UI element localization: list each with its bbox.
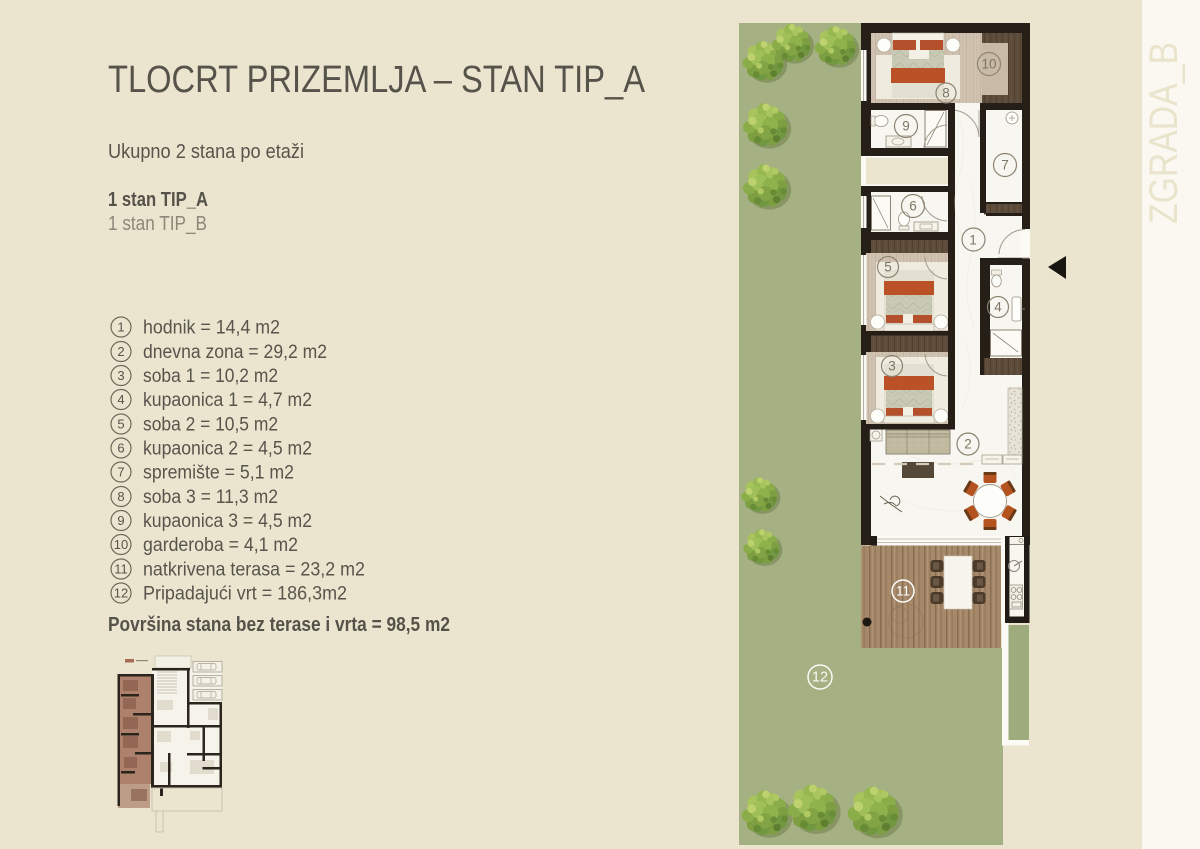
svg-text:1: 1	[969, 233, 977, 248]
svg-text:kupaonica 3 = 4,5 m2: kupaonica 3 = 4,5 m2	[143, 511, 312, 532]
svg-text:8: 8	[942, 86, 950, 101]
svg-text:8: 8	[117, 489, 124, 504]
svg-text:11: 11	[114, 562, 128, 577]
svg-text:kupaonica 1 = 4,7 m2: kupaonica 1 = 4,7 m2	[143, 390, 312, 411]
svg-text:10: 10	[981, 57, 996, 72]
svg-text:1 stan TIP_B: 1 stan TIP_B	[108, 213, 207, 235]
svg-text:Pripadajući vrt = 186,3m2: Pripadajući vrt = 186,3m2	[143, 584, 347, 605]
svg-text:7: 7	[1001, 158, 1009, 173]
svg-text:5: 5	[884, 260, 892, 275]
svg-text:4: 4	[994, 300, 1002, 315]
svg-text:7: 7	[117, 465, 124, 480]
svg-text:3: 3	[888, 359, 896, 374]
svg-text:11: 11	[896, 584, 910, 599]
svg-text:Površina stana bez terase i vr: Površina stana bez terase i vrta = 98,5 …	[108, 614, 450, 636]
svg-text:4: 4	[117, 392, 124, 407]
svg-text:10: 10	[114, 537, 128, 552]
svg-text:9: 9	[902, 119, 910, 134]
svg-text:9: 9	[117, 513, 124, 528]
svg-text:1: 1	[117, 320, 124, 335]
svg-text:Ukupno 2 stana po etaži: Ukupno 2 stana po etaži	[108, 141, 304, 163]
svg-text:12: 12	[114, 586, 128, 601]
svg-text:soba 1 = 10,2 m2: soba 1 = 10,2 m2	[143, 366, 278, 387]
svg-text:5: 5	[117, 417, 124, 432]
svg-text:2: 2	[117, 344, 124, 359]
svg-text:6: 6	[117, 441, 124, 456]
svg-text:soba 2 = 10,5 m2: soba 2 = 10,5 m2	[143, 415, 278, 436]
svg-text:dnevna zona = 29,2 m2: dnevna zona = 29,2 m2	[143, 342, 327, 363]
svg-text:3: 3	[117, 368, 124, 383]
svg-text:garderoba = 4,1 m2: garderoba = 4,1 m2	[143, 535, 298, 556]
svg-text:natkrivena terasa = 23,2 m2: natkrivena terasa = 23,2 m2	[143, 560, 365, 581]
svg-text:12: 12	[812, 670, 828, 686]
svg-text:TLOCRT PRIZEMLJA – STAN TIP_A: TLOCRT PRIZEMLJA – STAN TIP_A	[108, 59, 646, 101]
svg-text:soba 3 = 11,3 m2: soba 3 = 11,3 m2	[143, 487, 278, 508]
svg-text:6: 6	[909, 199, 917, 214]
svg-text:2: 2	[964, 437, 972, 452]
svg-text:1 stan TIP_A: 1 stan TIP_A	[108, 189, 208, 211]
svg-text:ZGRADA_B: ZGRADA_B	[1142, 42, 1186, 224]
svg-text:hodnik = 14,4 m2: hodnik = 14,4 m2	[143, 318, 280, 339]
svg-text:kupaonica 2 = 4,5 m2: kupaonica 2 = 4,5 m2	[143, 439, 312, 460]
svg-text:spremište = 5,1 m2: spremište = 5,1 m2	[143, 463, 294, 484]
